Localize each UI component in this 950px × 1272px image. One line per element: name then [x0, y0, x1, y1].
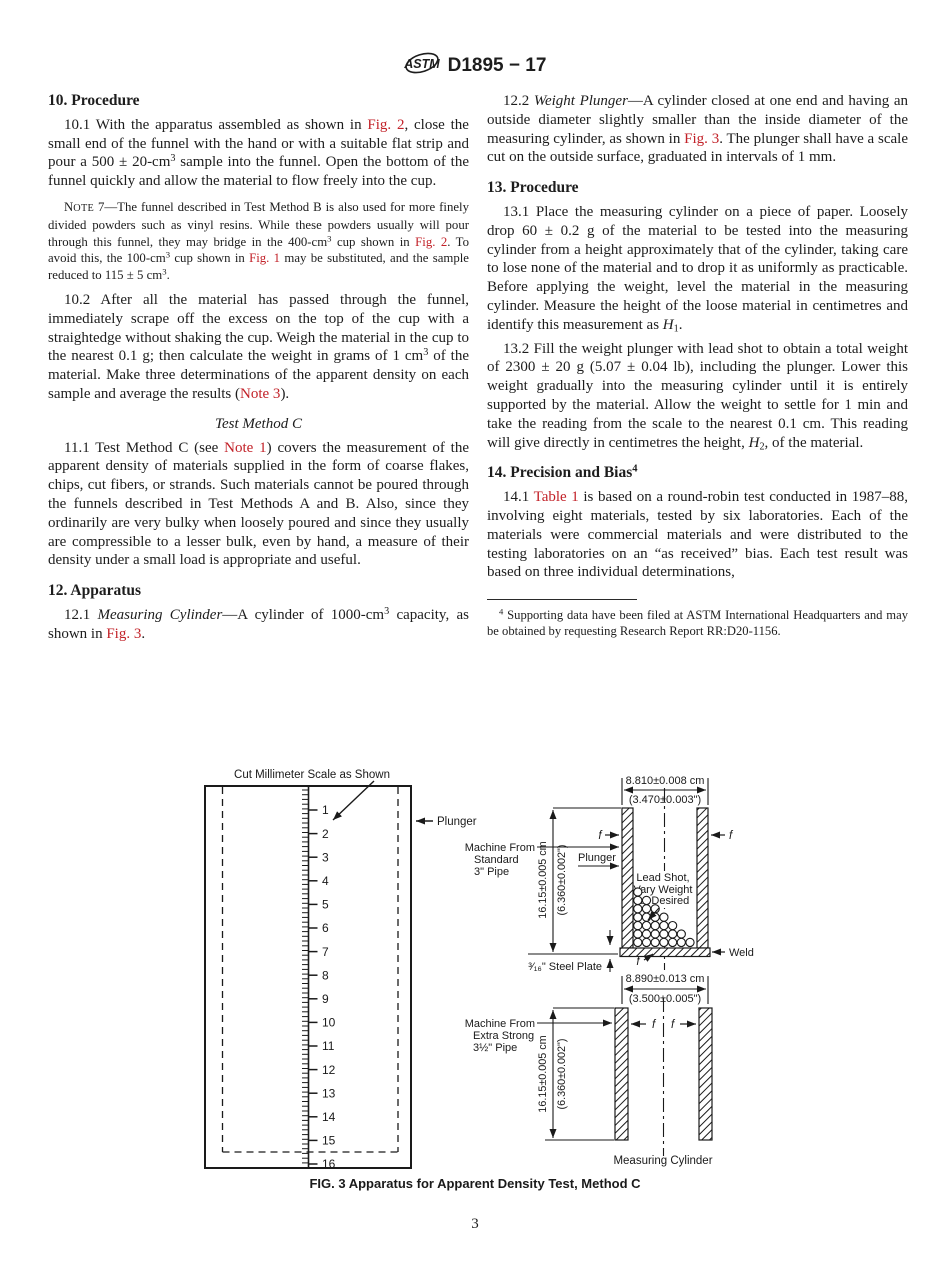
height2-dim-in: (6.360±0.002") — [556, 1039, 568, 1110]
ref-note-3[interactable]: Note 3 — [240, 386, 280, 402]
text-segment: ) covers the measurement of the apparent… — [48, 440, 469, 569]
para-10-2: 10.2 After all the material has passed t… — [48, 291, 469, 404]
height-dim-cm: 16.15±0.005 cm — [537, 841, 549, 918]
scale-number: 4 — [322, 874, 329, 888]
text-segment: 12.1 — [64, 607, 98, 623]
ref-fig-2[interactable]: Fig. 2 — [415, 235, 447, 249]
bottom-dim-cm: 8.890±0.013 cm — [626, 973, 705, 985]
top-dim-cm: 8.810±0.008 cm — [626, 775, 705, 787]
figure-3-diagram: 12345678910111213141516 Cut Millimeter S… — [0, 752, 950, 1222]
para-13-2: 13.2 Fill the weight plunger with lead s… — [487, 340, 908, 453]
scale-number: 6 — [322, 921, 329, 935]
para-12-1: 12.1 Measuring Cylinder—A cylinder of 10… — [48, 606, 469, 644]
document-page: ASTM D1895 − 17 10. Procedure 10.1 With … — [0, 0, 950, 1272]
ref-fig-1[interactable]: Fig. 1 — [249, 251, 280, 265]
text-segment: 4 — [632, 464, 637, 475]
footnote-4: 4 Supporting data have been filed at AST… — [487, 607, 908, 639]
doc-header: ASTM D1895 − 17 — [0, 48, 950, 83]
plunger-inner-label: Plunger — [578, 852, 616, 864]
scale-number: 8 — [322, 968, 329, 982]
machine-standard-line2: Standard — [474, 854, 519, 866]
machine-extra-line1: Machine From — [465, 1018, 535, 1030]
text-segment: 14.1 — [503, 489, 534, 505]
text-segment: cup shown in — [332, 235, 416, 249]
text-segment: OTE — [73, 203, 94, 214]
text-segment: H — [749, 435, 760, 451]
test-method-c-heading: Test Method C — [48, 415, 469, 434]
text-segment: H — [663, 317, 674, 333]
weld-label: Weld — [729, 947, 754, 959]
para-10-1: 10.1 With the apparatus assembled as sho… — [48, 116, 469, 191]
scale-number: 2 — [322, 827, 329, 841]
f-left-label: f — [598, 830, 603, 842]
measuring-cylinder-label: Measuring Cylinder — [613, 1155, 712, 1167]
text-segment: N — [64, 200, 73, 214]
scale-number: 11 — [322, 1039, 335, 1053]
left-column: 10. Procedure 10.1 With the apparatus as… — [48, 92, 469, 644]
f-inner-right-label: f — [671, 1019, 676, 1031]
plunger-scale-drawing: 12345678910111213141516 — [205, 786, 411, 1171]
section-14-heading: 14. Precision and Bias4 — [487, 464, 908, 483]
figure-caption: FIG. 3 Apparatus for Apparent Density Te… — [0, 1176, 950, 1191]
scale-number: 15 — [322, 1134, 336, 1148]
text-segment: . — [679, 317, 683, 333]
text-segment: cup shown in — [170, 251, 249, 265]
scale-number: 10 — [322, 1016, 336, 1030]
weight-plunger-drawing: 8.810±0.008 cm (3.470±0.003") f f Machin… — [465, 775, 754, 1005]
text-segment: Weight Plunger — [534, 93, 628, 109]
text-segment: —A cylinder of 1000-cm — [222, 607, 384, 623]
steel-plate-label: ³⁄₁₆" Steel Plate — [528, 961, 602, 973]
footnote-rule — [487, 599, 637, 600]
f-inner-left-label: f — [652, 1019, 657, 1031]
f-plate-label: f — [636, 956, 641, 968]
bottom-dim-in: (3.500±0.005") — [629, 993, 701, 1005]
f-right-label: f — [729, 830, 734, 842]
scale-number: 12 — [322, 1063, 336, 1077]
text-segment: Supporting data have been filed at ASTM … — [487, 608, 908, 638]
section-12-heading: 12. Apparatus — [48, 582, 469, 601]
para-13-1: 13.1 Place the measuring cylinder on a p… — [487, 203, 908, 335]
text-segment: . — [167, 268, 170, 282]
scale-callout-label: Cut Millimeter Scale as Shown — [234, 769, 390, 781]
note-7: NOTE 7—The funnel described in Test Meth… — [48, 199, 469, 283]
text-segment: 14. Precision and Bias — [487, 464, 632, 481]
scale-number: 14 — [322, 1110, 336, 1124]
page-number: 3 — [0, 1216, 950, 1233]
ref-fig-3[interactable]: Fig. 3 — [684, 131, 719, 147]
para-12-2: 12.2 Weight Plunger—A cylinder closed at… — [487, 92, 908, 167]
text-segment: . — [141, 626, 145, 642]
height2-dim-cm: 16.15±0.005 cm — [537, 1035, 549, 1112]
machine-standard-line1: Machine From — [465, 842, 535, 854]
astm-logo-icon: ASTM — [404, 48, 440, 83]
scale-number: 13 — [322, 1086, 336, 1100]
section-10-heading: 10. Procedure — [48, 92, 469, 111]
height-dim-in: (6.360±0.002") — [556, 845, 568, 916]
millimeter-ruler: 12345678910111213141516 — [302, 790, 336, 1171]
para-11-1: 11.1 Test Method C (see Note 1) covers t… — [48, 439, 469, 571]
machine-standard-line3: 3" Pipe — [474, 866, 509, 878]
scale-number: 7 — [322, 945, 329, 959]
section-13-heading: 13. Procedure — [487, 179, 908, 198]
ref-fig-2[interactable]: Fig. 2 — [367, 117, 404, 133]
machine-extra-line2: Extra Strong — [473, 1030, 534, 1042]
machine-extra-line3: 3½" Pipe — [473, 1042, 517, 1054]
para-14-1: 14.1 Table 1 is based on a round-robin t… — [487, 488, 908, 582]
text-segment: , of the material. — [765, 435, 864, 451]
text-segment: Measuring Cylinder — [98, 607, 223, 623]
doc-code: D1895 − 17 — [448, 55, 547, 77]
text-segment: 12.2 — [503, 93, 534, 109]
right-column: 12.2 Weight Plunger—A cylinder closed at… — [487, 92, 908, 640]
ref-table-1[interactable]: Table 1 — [534, 489, 579, 505]
measuring-cylinder-drawing: Machine From Extra Strong 3½" Pipe 16.15… — [465, 998, 713, 1167]
scale-number: 9 — [322, 992, 329, 1006]
text-segment: 10.1 With the apparatus assembled as sho… — [64, 117, 367, 133]
text-segment: 10.2 After all the material has passed t… — [48, 292, 469, 364]
scale-number: 5 — [322, 898, 329, 912]
ref-fig-3[interactable]: Fig. 3 — [106, 626, 141, 642]
text-segment: 13.1 Place the measuring cylinder on a p… — [487, 204, 908, 333]
text-segment: ). — [280, 386, 289, 402]
svg-text:ASTM: ASTM — [404, 57, 440, 71]
ref-note-1[interactable]: Note 1 — [224, 440, 266, 456]
lead-shot-line1: Lead Shot, — [636, 872, 689, 884]
plunger-pointer-label: Plunger — [437, 816, 477, 828]
scale-number: 16 — [322, 1157, 336, 1171]
scale-number: 1 — [322, 803, 329, 817]
scale-number: 3 — [322, 850, 329, 864]
text-segment: 11.1 Test Method C (see — [64, 440, 224, 456]
